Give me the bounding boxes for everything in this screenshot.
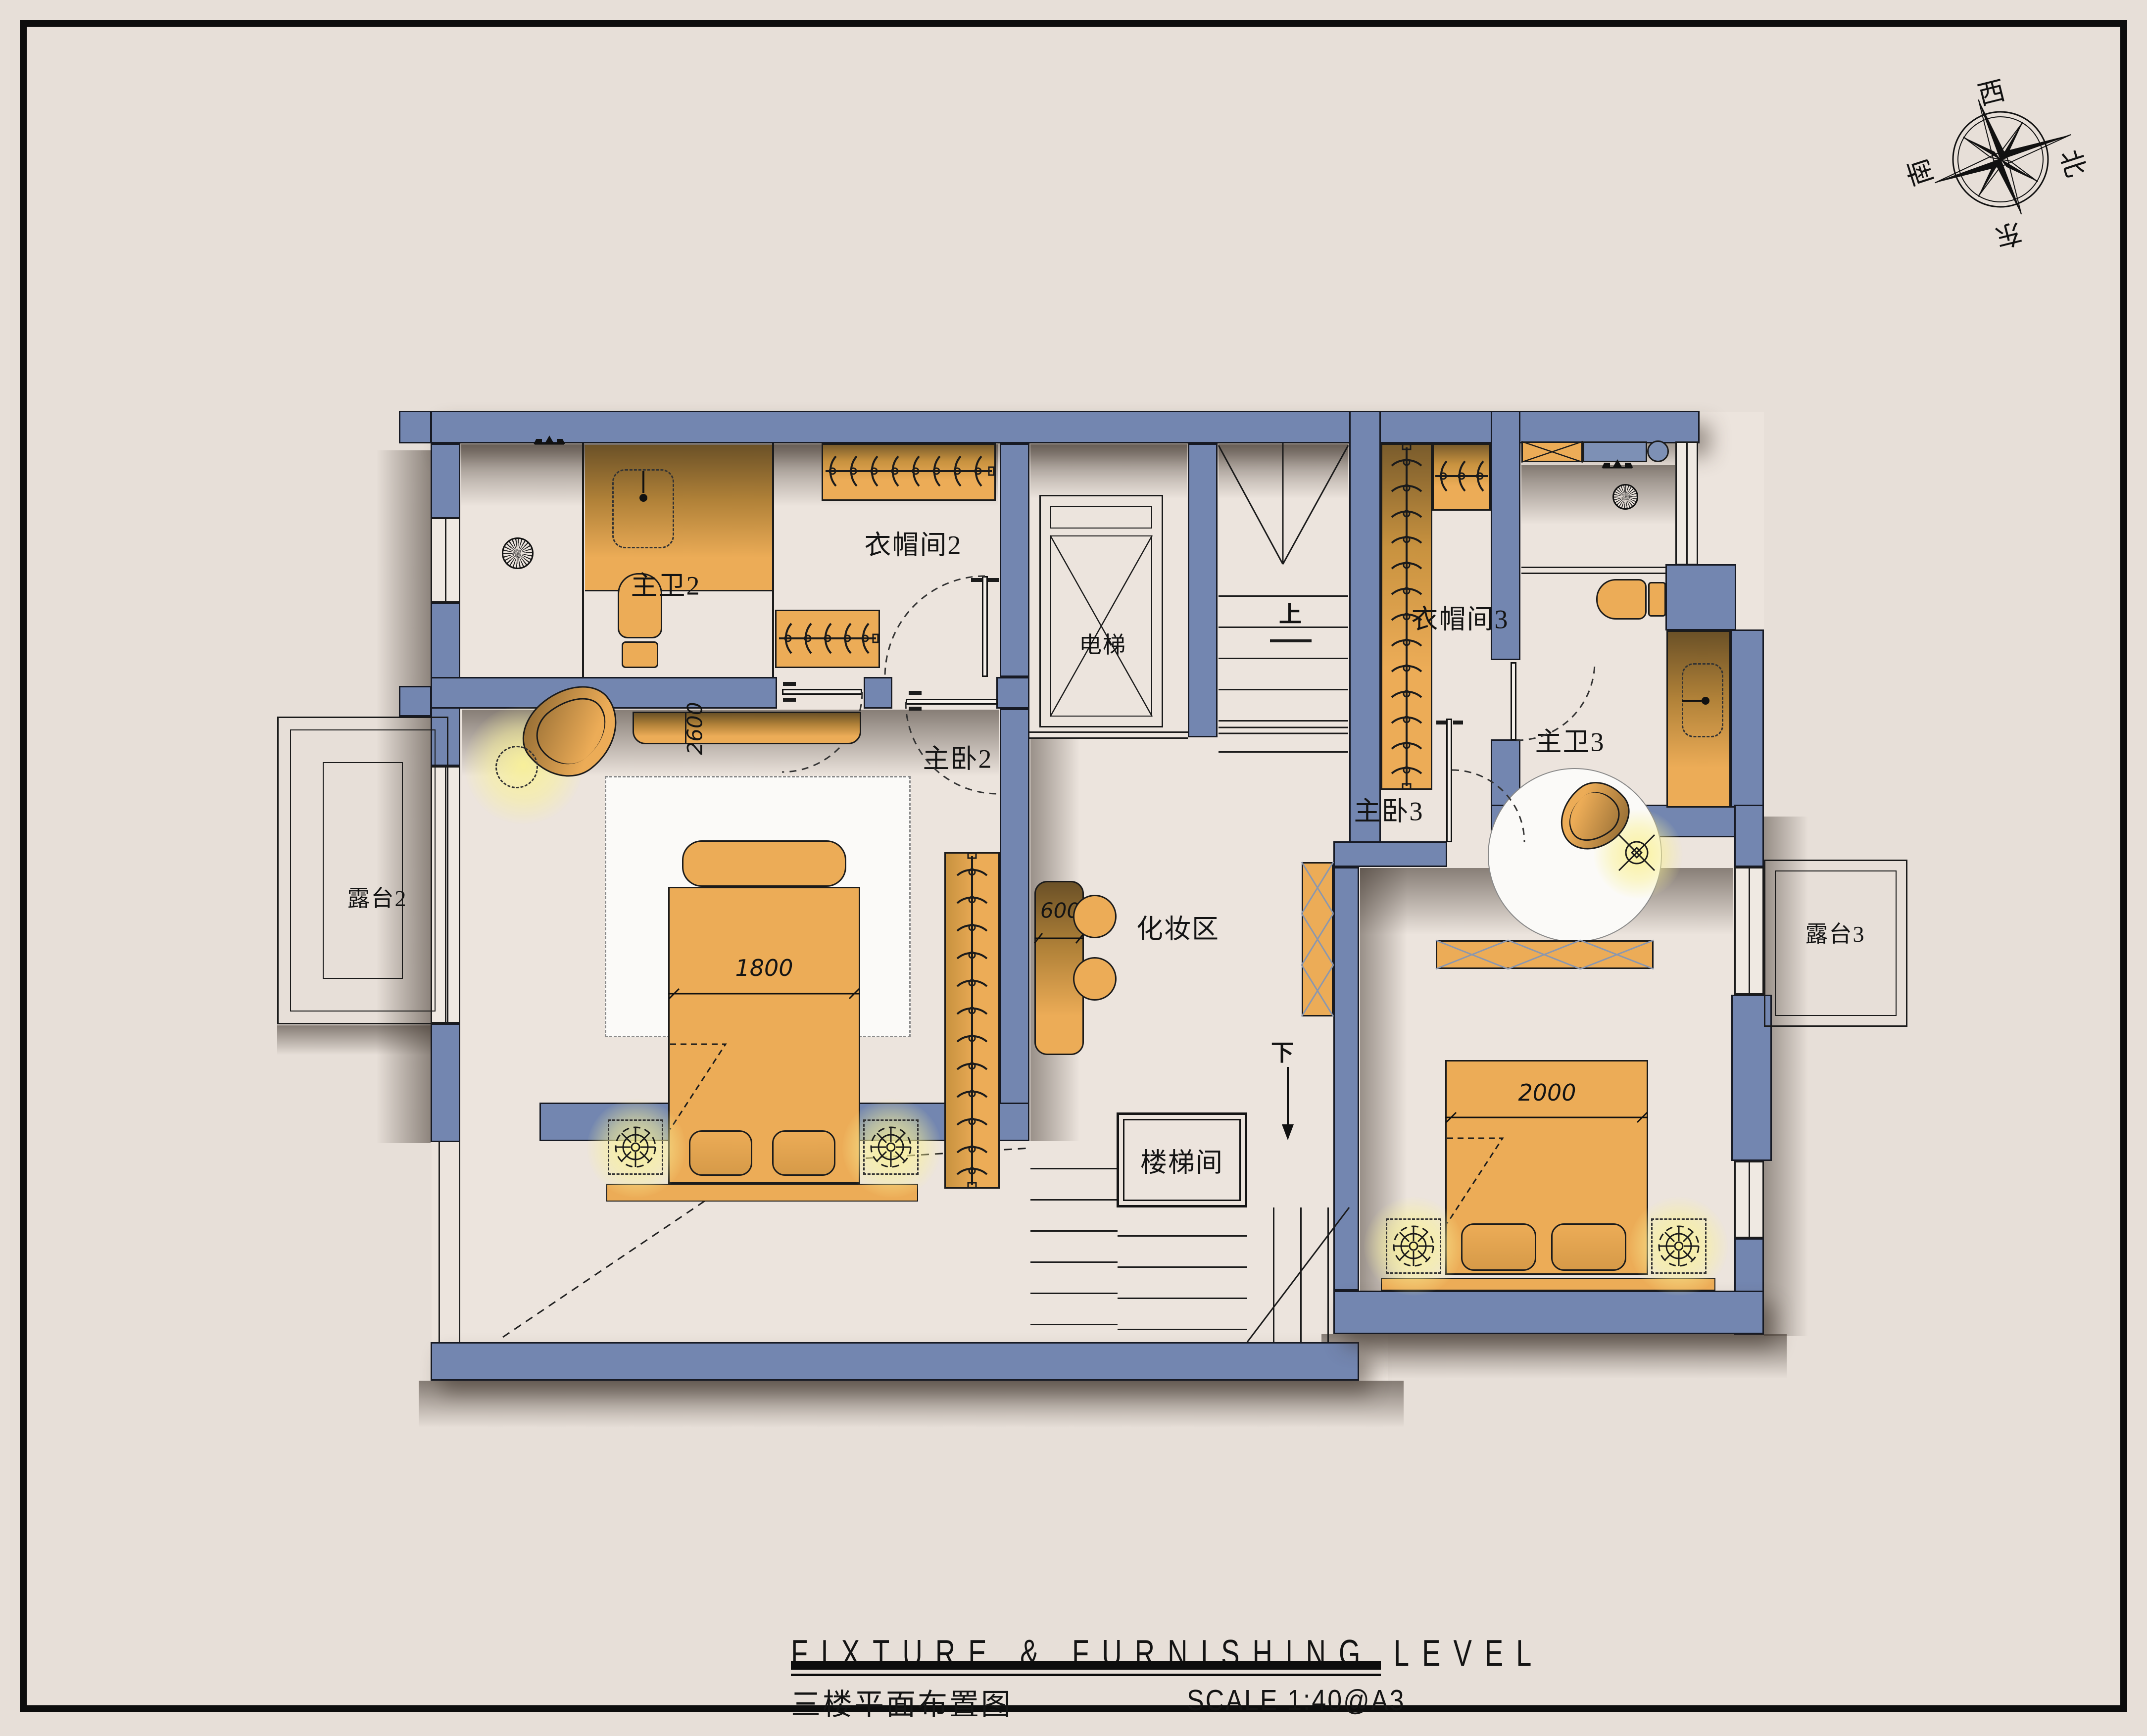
bed3-fold-icon	[1445, 1136, 1534, 1225]
shower-drain-icon	[502, 537, 534, 569]
bath3-door-leaf	[1511, 662, 1516, 740]
void-edge-lines	[439, 1141, 460, 1342]
partition-bath3-shower	[1521, 573, 1666, 574]
wall-bedroom3-east	[1734, 805, 1764, 867]
wall-northwest-stub	[399, 411, 432, 443]
closet3-hanger-icons-north	[1432, 443, 1491, 511]
bed3-pillow	[1551, 1223, 1626, 1271]
wall-south-west	[431, 1342, 1359, 1381]
stairs-up-winder	[1219, 443, 1348, 735]
bed3-dimension-text: 2000	[1518, 1079, 1576, 1106]
bath3-cabinet-x-icon	[1521, 441, 1583, 462]
terrace2-rail	[323, 762, 403, 979]
elevator-cross-icon	[1050, 535, 1152, 717]
bedroom3-tv-cabinet-x-icon	[1436, 940, 1654, 969]
window-bedroom3-east	[1734, 1161, 1764, 1238]
makeup-area-label: 化妆区	[1136, 907, 1220, 946]
door-latch-icon	[783, 698, 796, 702]
wall-pier	[996, 677, 1029, 709]
stairs-up-mark	[1270, 639, 1312, 642]
bath2-toilet-tank	[622, 641, 658, 668]
door-latch-icon	[1436, 721, 1446, 724]
closet2-hanger-icons	[822, 443, 996, 501]
wall-bedroom3-south	[1333, 1291, 1764, 1334]
title-rule-thin	[791, 1674, 1381, 1676]
table-lamp-icon	[616, 1127, 655, 1167]
bath3-toilet-bowl	[1596, 579, 1647, 620]
bedroom3-label: 主卧3	[1354, 789, 1424, 828]
bed2-dimension-text: 1800	[735, 955, 793, 981]
window-terrace3-door	[1734, 867, 1764, 995]
bath3-shower-head-icon	[1602, 459, 1633, 469]
stairwell-label: 楼梯间	[1140, 1141, 1223, 1180]
closet3-label: 衣帽间3	[1412, 597, 1509, 636]
wall-west-jog	[399, 686, 432, 717]
partition-shower-bath2	[582, 443, 584, 677]
bed2-foot-cushion	[682, 840, 846, 887]
stairs-down-treads-west	[1030, 1168, 1118, 1342]
door-latch-icon	[971, 578, 982, 582]
wall-elevator-stairs	[1188, 443, 1218, 737]
door-latch-icon	[988, 578, 999, 582]
bath3-door-swing-arc	[1516, 662, 1595, 740]
stairs-down-diagonal	[1247, 1207, 1349, 1342]
elevator-door-sill	[1050, 506, 1152, 529]
bath2-shower-head-icon	[534, 435, 565, 445]
bed2-pillow	[689, 1130, 752, 1176]
wall-bath3-block	[1665, 564, 1736, 630]
title-chinese: 三楼平面布置图	[791, 1681, 1013, 1724]
partition-bath3-shower	[1521, 567, 1666, 568]
bedroom2-door-swing-arc	[906, 702, 998, 794]
compass-north-label: 北	[2054, 146, 2091, 181]
makeup-stool	[1073, 957, 1117, 1001]
door-latch-icon	[783, 682, 796, 686]
bedroom3-door-leaf	[1446, 719, 1452, 842]
makeup-cabinet-x-icon	[1302, 862, 1333, 1016]
makeup-stool	[1073, 895, 1117, 938]
bath3-faucet-icon	[1682, 691, 1711, 711]
shower-drain-icon	[1612, 484, 1638, 510]
wall-closet2-elevator	[1000, 443, 1029, 677]
closet2-door-swing-arc	[885, 576, 985, 677]
wall-west-segment	[431, 443, 460, 519]
compass-rose: 西 北 东 南	[1915, 74, 2094, 252]
wall-bedroom3-northwest	[1333, 841, 1447, 867]
title-rule-thick	[791, 1661, 1381, 1670]
wall-pier	[864, 677, 892, 709]
bed2-pillow	[772, 1130, 835, 1176]
bedroom2-side-table	[495, 746, 538, 788]
door-latch-icon	[909, 691, 922, 695]
bed3-pillow	[1461, 1223, 1536, 1271]
bath3-toilet-tank	[1648, 582, 1666, 617]
makeup-table-dimension-line	[1034, 932, 1084, 944]
table-lamp-icon	[1659, 1226, 1699, 1266]
bed3-dimension-line	[1445, 1111, 1648, 1123]
closet2-small-hanger-icons	[775, 610, 880, 668]
bath2-faucet-icon	[633, 471, 654, 503]
wall-west-segment	[431, 1023, 460, 1142]
title-scale: SCALE 1:40@A3	[1187, 1684, 1406, 1718]
stairs-down-arrow	[1279, 1067, 1299, 1141]
wall-bath3-east	[1731, 629, 1764, 808]
stairs-down-treads-mid	[1118, 1235, 1247, 1342]
floor-plan-page: { "title_block": { "english": "FIXTURE &…	[0, 0, 2147, 1736]
terrace2-label: 露台2	[347, 880, 407, 913]
elevator-landing-line	[1029, 737, 1188, 739]
table-lamp-icon	[871, 1127, 911, 1167]
bedroom2-desk	[633, 712, 861, 744]
window-west-upper	[431, 518, 460, 603]
compass-east-label: 东	[1992, 217, 2025, 252]
bed2-dimension-line	[668, 988, 860, 1000]
elevator-landing-line	[1029, 731, 1188, 733]
wall-bedroom2-makeup	[1000, 709, 1029, 1141]
door-latch-icon	[909, 707, 922, 711]
bath2-label: 主卫2	[631, 564, 701, 603]
bath3-basin-icon	[1647, 440, 1669, 462]
floor-lamp-icon	[1619, 835, 1655, 870]
bedroom3-door-swing-arc	[1452, 770, 1524, 842]
door-latch-icon	[1453, 721, 1463, 724]
bed2-fold-icon	[668, 1042, 757, 1131]
elevator-label: 电梯	[1079, 627, 1126, 660]
terrace3-label: 露台3	[1805, 916, 1865, 949]
closet2-label: 衣帽间2	[865, 523, 962, 562]
window-bath3-east	[1675, 441, 1698, 565]
partition-bath2-closet2	[772, 443, 774, 677]
table-lamp-icon	[1394, 1226, 1433, 1266]
bedroom2-wardrobe-hanger-icons	[944, 852, 1000, 1189]
stairs-down-label: 下	[1271, 1035, 1295, 1067]
desk-dimension-text: 2600	[683, 702, 707, 755]
stairs-up-label: 上	[1279, 596, 1303, 629]
